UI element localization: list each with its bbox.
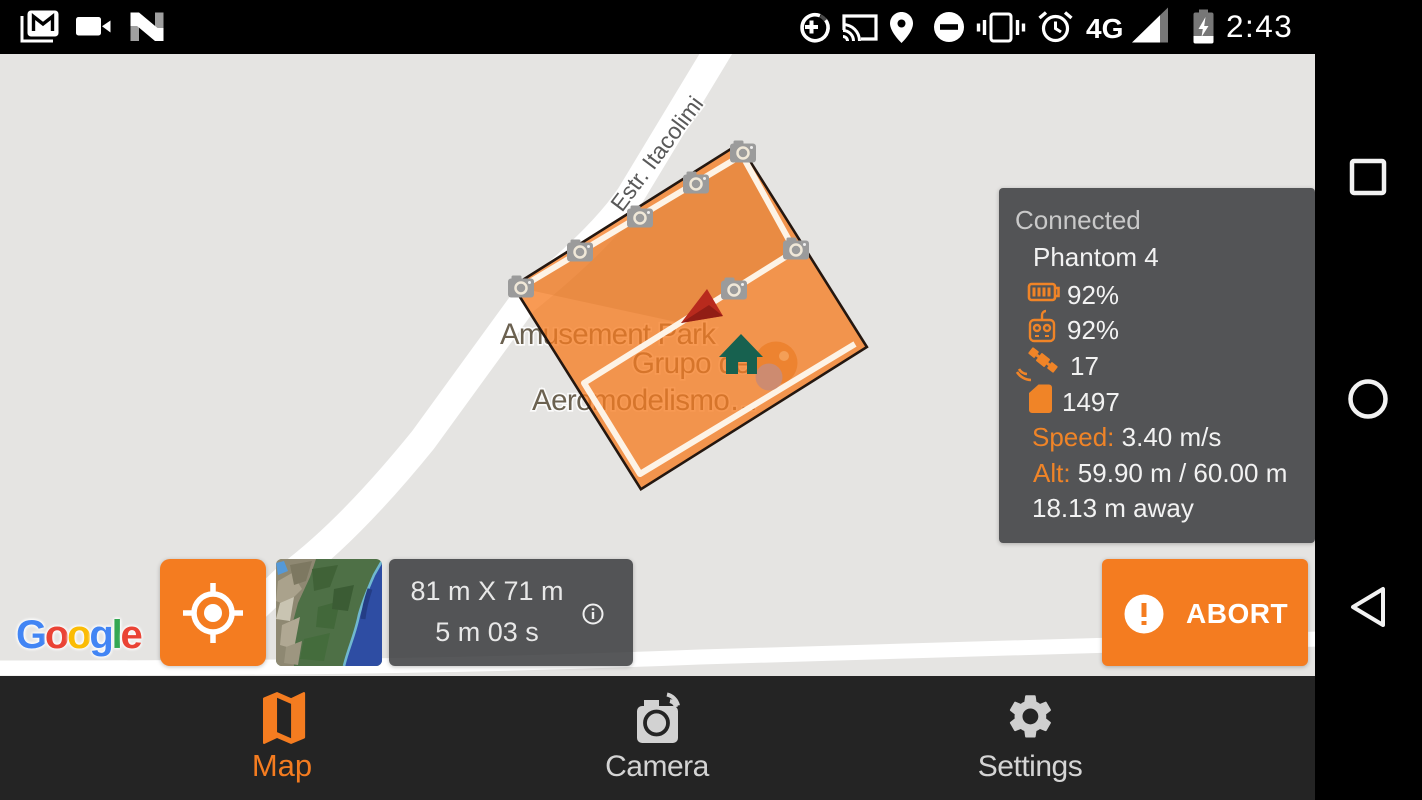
svg-text:4G: 4G <box>1086 13 1123 44</box>
svg-text:92%: 92% <box>1067 315 1119 345</box>
svg-text:ABORT: ABORT <box>1186 598 1288 629</box>
svg-text:Map: Map <box>252 748 312 783</box>
svg-text:1497: 1497 <box>1062 387 1120 417</box>
svg-text:Camera: Camera <box>605 750 710 783</box>
svg-text:5 m 03 s: 5 m 03 s <box>435 617 539 647</box>
svg-text:18.13 m away: 18.13 m away <box>1032 493 1194 523</box>
svg-text:17: 17 <box>1070 351 1099 381</box>
svg-text:Phantom 4: Phantom 4 <box>1033 242 1159 272</box>
svg-text:81 m X 71 m: 81 m X 71 m <box>410 576 563 606</box>
svg-text:92%: 92% <box>1067 280 1119 310</box>
svg-text:Settings: Settings <box>978 750 1082 783</box>
svg-text:Connected: Connected <box>1015 205 1141 235</box>
svg-text:Speed: 3.40 m/s: Speed: 3.40 m/s <box>1032 422 1221 452</box>
svg-text:Alt: 59.90 m / 60.00 m: Alt: 59.90 m / 60.00 m <box>1033 458 1287 488</box>
svg-text:2:43: 2:43 <box>1226 8 1293 44</box>
